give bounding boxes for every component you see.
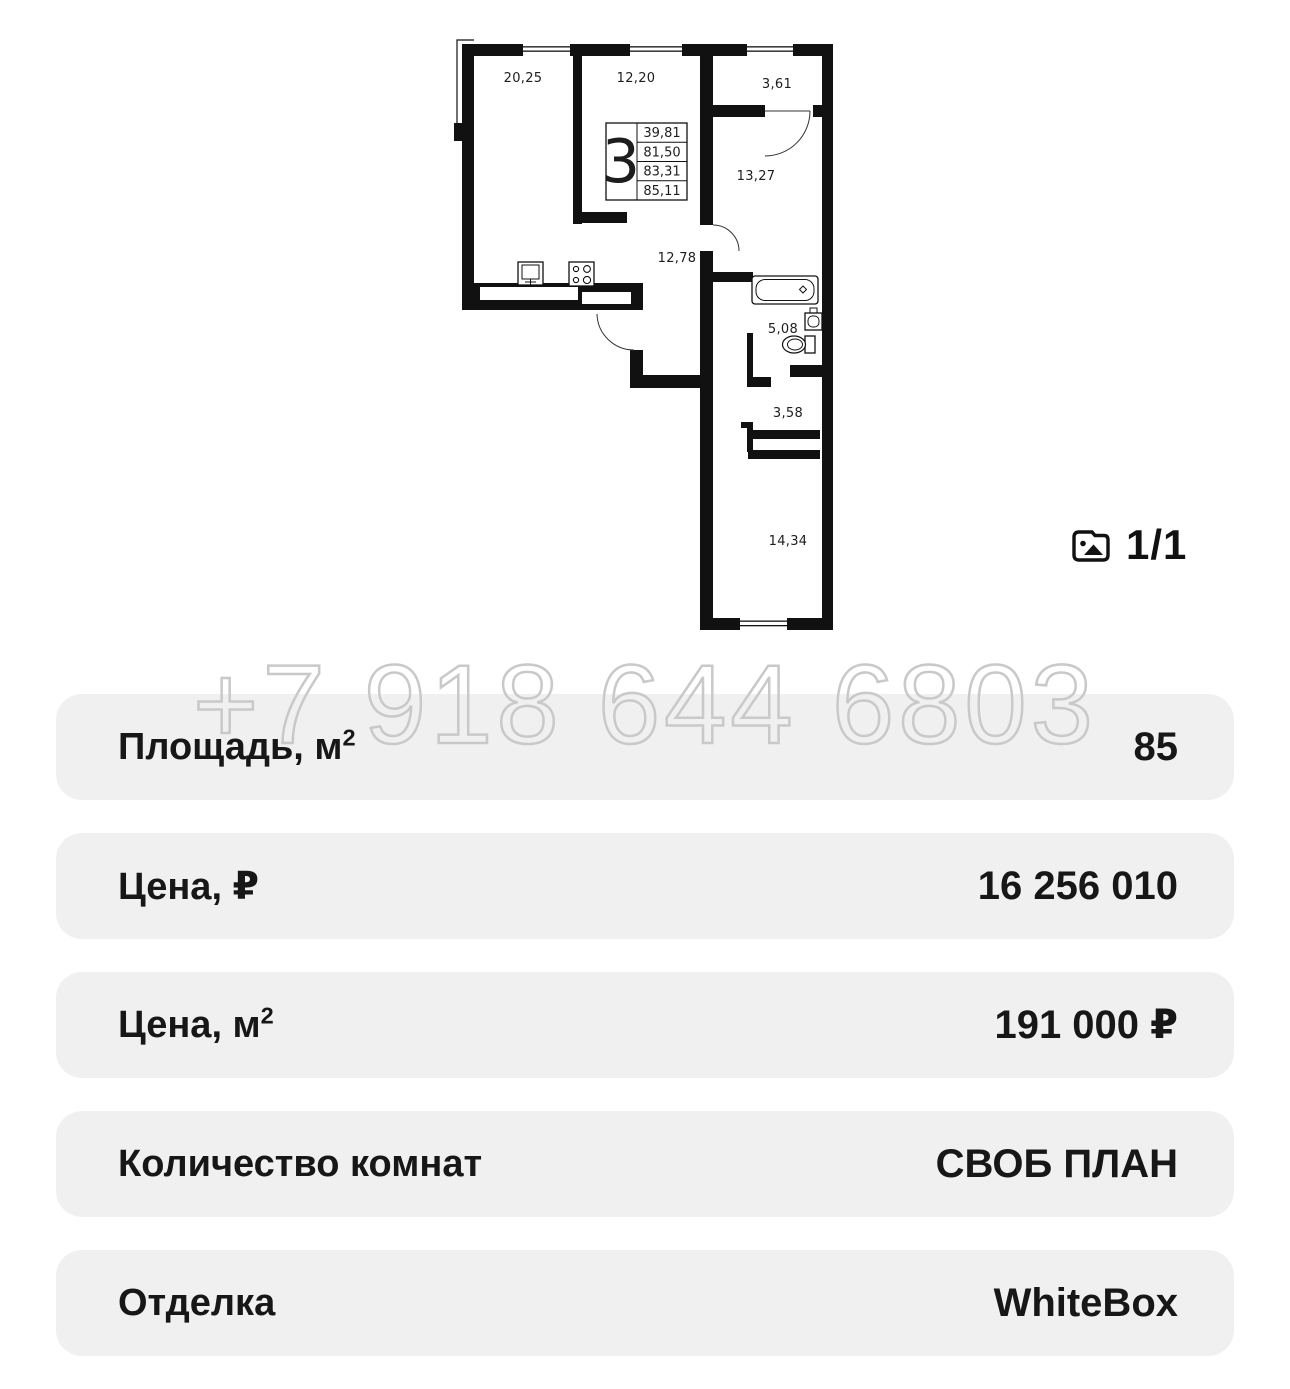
image-icon (1070, 526, 1112, 564)
room-label-loggia: 3,61 (762, 77, 792, 92)
area-value-1: 39,81 (643, 126, 680, 141)
area-value-2: 81,50 (643, 145, 680, 160)
room-label-hallway: 12,78 (658, 251, 697, 266)
area-value-4: 85,11 (643, 184, 680, 199)
spec-value: WhiteBox (994, 1281, 1178, 1326)
toilet-icon (783, 336, 816, 353)
spec-label: Отделка (118, 1282, 275, 1325)
room-label-room-bottom: 14,34 (769, 534, 808, 549)
area-table: 3 39,81 81,50 83,31 85,11 (602, 123, 687, 200)
room-label-bathroom: 5,08 (768, 322, 798, 337)
spec-value: СВОБ ПЛАН (936, 1142, 1178, 1187)
spec-row-rooms: Количество комнат СВОБ ПЛАН (56, 1111, 1234, 1217)
photo-counter-label: 1/1 (1126, 521, 1187, 569)
spec-label: Количество комнат (118, 1143, 482, 1186)
spec-value: 85 (1134, 725, 1179, 770)
kitchen-sink-icon (518, 262, 543, 285)
bathtub-icon (752, 276, 818, 304)
floor-plan: 3 39,81 81,50 83,31 85,11 20,25 12,20 3,… (450, 36, 840, 636)
photo-counter[interactable]: 1/1 (1070, 521, 1187, 569)
room-label-entry: 3,58 (773, 406, 803, 421)
spec-label: Цена, м2 (118, 1004, 274, 1047)
spec-label: Площадь, м2 (118, 726, 356, 769)
spec-value: 16 256 010 (978, 864, 1178, 909)
washbasin-icon (805, 308, 822, 330)
spec-row-area: Площадь, м2 85 (56, 694, 1234, 800)
spec-list: Площадь, м2 85 Цена, ₽ 16 256 010 Цена, … (56, 694, 1234, 1389)
spec-label: Цена, ₽ (118, 864, 259, 909)
spec-row-price: Цена, ₽ 16 256 010 (56, 833, 1234, 939)
spec-row-price-per-m2: Цена, м2 191 000 ₽ (56, 972, 1234, 1078)
rooms-count: 3 (602, 127, 640, 197)
room-label-kitchen-living: 20,25 (504, 71, 543, 86)
room-label-bedroom: 12,20 (617, 71, 656, 86)
spec-value: 191 000 ₽ (994, 1002, 1178, 1048)
stove-icon (569, 262, 594, 286)
room-label-room-right: 13,27 (737, 169, 776, 184)
area-value-3: 83,31 (643, 165, 680, 180)
spec-row-finishing: Отделка WhiteBox (56, 1250, 1234, 1356)
